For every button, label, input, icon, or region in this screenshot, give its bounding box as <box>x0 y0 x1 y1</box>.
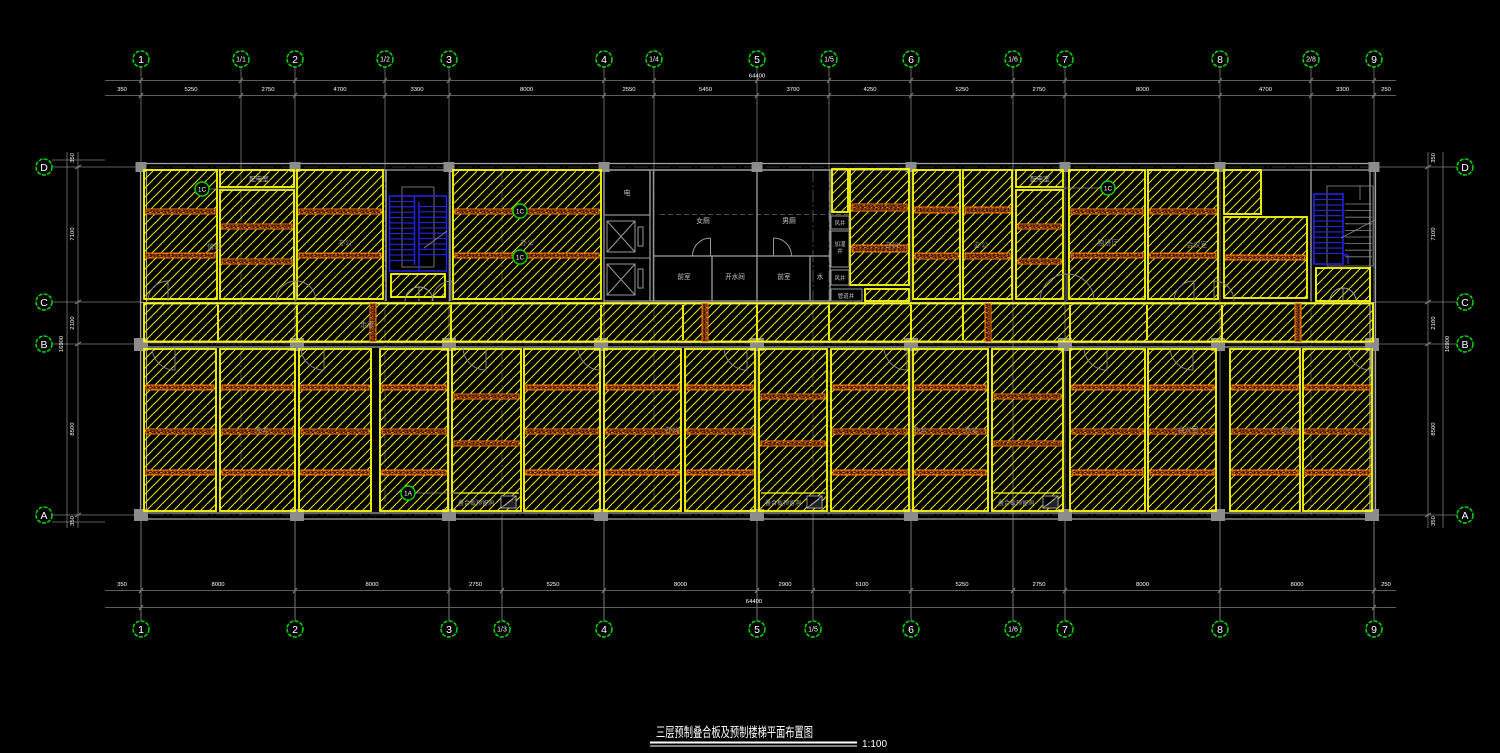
svg-text:5250: 5250 <box>546 582 560 588</box>
svg-text:2: 2 <box>292 54 298 66</box>
svg-text:6: 6 <box>908 54 914 66</box>
svg-text:9: 9 <box>1371 54 1377 66</box>
svg-text:D: D <box>1461 162 1469 174</box>
svg-text:1C: 1C <box>516 209 525 216</box>
svg-text:350: 350 <box>117 87 128 93</box>
svg-text:会议室: 会议室 <box>1178 425 1199 434</box>
svg-text:配电室: 配电室 <box>249 174 269 183</box>
svg-text:7: 7 <box>1062 54 1068 66</box>
svg-text:C: C <box>1461 297 1469 309</box>
svg-text:1C: 1C <box>198 187 207 194</box>
svg-text:B: B <box>1461 339 1468 351</box>
svg-text:办公: 办公 <box>974 240 988 249</box>
svg-text:2100: 2100 <box>1431 316 1437 330</box>
svg-text:5: 5 <box>754 624 760 636</box>
svg-text:办公: 办公 <box>338 238 352 247</box>
svg-text:2750: 2750 <box>1032 87 1046 93</box>
svg-text:250: 250 <box>1381 87 1392 93</box>
svg-text:井: 井 <box>837 247 843 255</box>
svg-text:3: 3 <box>446 624 452 636</box>
svg-text:8: 8 <box>1217 624 1223 636</box>
svg-text:2550: 2550 <box>622 87 636 93</box>
svg-text:开水间: 开水间 <box>725 272 745 281</box>
svg-text:8500: 8500 <box>70 422 76 436</box>
svg-text:8000: 8000 <box>1290 582 1304 588</box>
svg-text:走廊: 走廊 <box>360 320 374 329</box>
svg-text:水: 水 <box>817 272 824 281</box>
svg-text:8000: 8000 <box>1136 87 1150 93</box>
svg-text:独班厅: 独班厅 <box>1098 238 1119 247</box>
svg-text:1/3: 1/3 <box>497 627 507 634</box>
svg-text:1/5: 1/5 <box>808 627 818 634</box>
svg-text:电: 电 <box>624 188 631 197</box>
svg-text:三层预制叠合板及预制楼梯平面布置图: 三层预制叠合板及预制楼梯平面布置图 <box>656 725 813 740</box>
svg-text:前室: 前室 <box>677 272 691 281</box>
svg-text:叠合板预留洞: 叠合板预留洞 <box>765 499 801 507</box>
svg-text:8000: 8000 <box>520 87 534 93</box>
svg-text:办公: 办公 <box>885 240 899 249</box>
svg-text:9: 9 <box>1371 624 1377 636</box>
svg-text:叠合板预留洞: 叠合板预留洞 <box>458 499 494 507</box>
svg-text:1/1: 1/1 <box>236 57 246 64</box>
svg-text:8500: 8500 <box>1431 422 1437 436</box>
svg-text:5100: 5100 <box>855 582 869 588</box>
svg-text:值班: 值班 <box>207 242 221 251</box>
svg-text:办公: 办公 <box>520 238 534 247</box>
svg-text:8000: 8000 <box>211 582 225 588</box>
svg-text:3300: 3300 <box>410 87 424 93</box>
svg-text:16900: 16900 <box>1445 335 1451 352</box>
svg-text:2/8: 2/8 <box>1306 57 1316 64</box>
svg-text:C: C <box>40 297 48 309</box>
svg-text:办公: 办公 <box>255 425 269 434</box>
svg-text:4: 4 <box>601 54 607 66</box>
svg-text:350: 350 <box>70 152 76 163</box>
svg-text:2100: 2100 <box>70 316 76 330</box>
svg-text:3: 3 <box>446 54 452 66</box>
svg-text:6: 6 <box>908 624 914 636</box>
svg-text:8000: 8000 <box>1136 582 1150 588</box>
svg-text:3300: 3300 <box>1336 87 1350 93</box>
svg-text:350: 350 <box>70 515 76 526</box>
svg-text:5250: 5250 <box>955 582 969 588</box>
svg-text:2750: 2750 <box>261 87 275 93</box>
svg-text:1C: 1C <box>1104 186 1113 193</box>
svg-text:前室: 前室 <box>777 272 791 281</box>
svg-text:8: 8 <box>1217 54 1223 66</box>
svg-text:7100: 7100 <box>70 227 76 241</box>
svg-text:办公: 办公 <box>1283 425 1297 434</box>
svg-text:350: 350 <box>117 582 128 588</box>
svg-text:4700: 4700 <box>1259 87 1273 93</box>
svg-text:4: 4 <box>601 624 607 636</box>
svg-text:1/2: 1/2 <box>380 57 390 64</box>
svg-text:250: 250 <box>1381 582 1392 588</box>
svg-text:风井: 风井 <box>834 274 846 282</box>
svg-text:加湿: 加湿 <box>834 240 846 248</box>
svg-text:64400: 64400 <box>749 74 766 80</box>
svg-text:女厕: 女厕 <box>696 216 710 225</box>
svg-text:D: D <box>40 162 48 174</box>
svg-text:1/6: 1/6 <box>1008 627 1018 634</box>
svg-text:1:100: 1:100 <box>862 739 887 750</box>
svg-text:男厕: 男厕 <box>782 217 796 225</box>
svg-text:7100: 7100 <box>1431 227 1437 241</box>
svg-text:350: 350 <box>1431 515 1437 526</box>
svg-text:B: B <box>40 339 47 351</box>
svg-text:7: 7 <box>1062 624 1068 636</box>
svg-text:2: 2 <box>292 624 298 636</box>
svg-text:64400: 64400 <box>746 599 763 605</box>
svg-text:A: A <box>1461 510 1468 522</box>
svg-text:5250: 5250 <box>955 87 969 93</box>
svg-text:16900: 16900 <box>59 335 65 352</box>
svg-text:A: A <box>40 510 47 522</box>
svg-text:2900: 2900 <box>778 582 792 588</box>
svg-text:1/5: 1/5 <box>824 57 834 64</box>
svg-text:1: 1 <box>138 54 144 66</box>
svg-text:3700: 3700 <box>786 87 800 93</box>
svg-text:5: 5 <box>754 54 760 66</box>
svg-text:会议室: 会议室 <box>1187 240 1208 249</box>
svg-text:办公: 办公 <box>964 425 978 434</box>
svg-text:叠合板预留洞: 叠合板预留洞 <box>998 499 1034 507</box>
svg-text:350: 350 <box>1431 152 1437 163</box>
svg-text:8000: 8000 <box>365 582 379 588</box>
svg-text:1: 1 <box>138 624 144 636</box>
svg-text:办公: 办公 <box>913 425 927 434</box>
svg-text:4250: 4250 <box>863 87 877 93</box>
svg-text:2750: 2750 <box>469 582 483 588</box>
svg-text:1C: 1C <box>516 255 525 262</box>
svg-text:2750: 2750 <box>1032 582 1046 588</box>
svg-text:风井: 风井 <box>834 219 846 227</box>
svg-text:1/4: 1/4 <box>649 57 659 64</box>
svg-text:5250: 5250 <box>184 87 198 93</box>
svg-text:办公: 办公 <box>665 425 679 434</box>
svg-text:4700: 4700 <box>333 87 347 93</box>
svg-text:1A: 1A <box>404 491 413 498</box>
svg-text:配电室: 配电室 <box>1030 174 1050 183</box>
svg-text:管道井: 管道井 <box>838 292 855 300</box>
svg-text:1/6: 1/6 <box>1008 57 1018 64</box>
svg-text:8000: 8000 <box>674 582 688 588</box>
svg-text:5450: 5450 <box>699 87 713 93</box>
